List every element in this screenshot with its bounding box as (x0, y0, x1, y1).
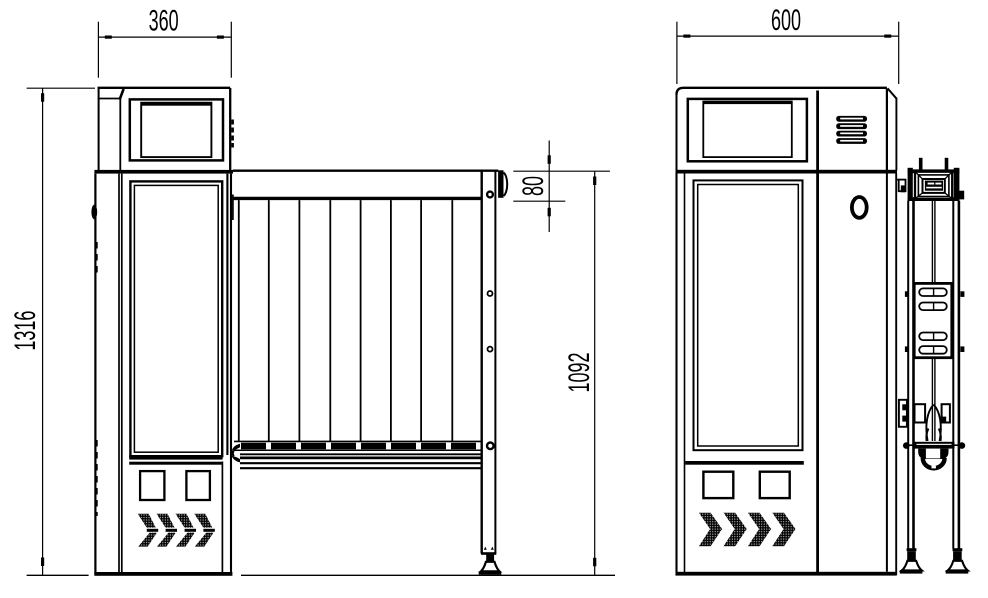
svg-text:80: 80 (518, 176, 551, 196)
svg-text:1316: 1316 (9, 311, 42, 351)
svg-text:1092: 1092 (563, 352, 596, 392)
svg-text:360: 360 (149, 5, 179, 38)
svg-text:600: 600 (771, 5, 801, 38)
